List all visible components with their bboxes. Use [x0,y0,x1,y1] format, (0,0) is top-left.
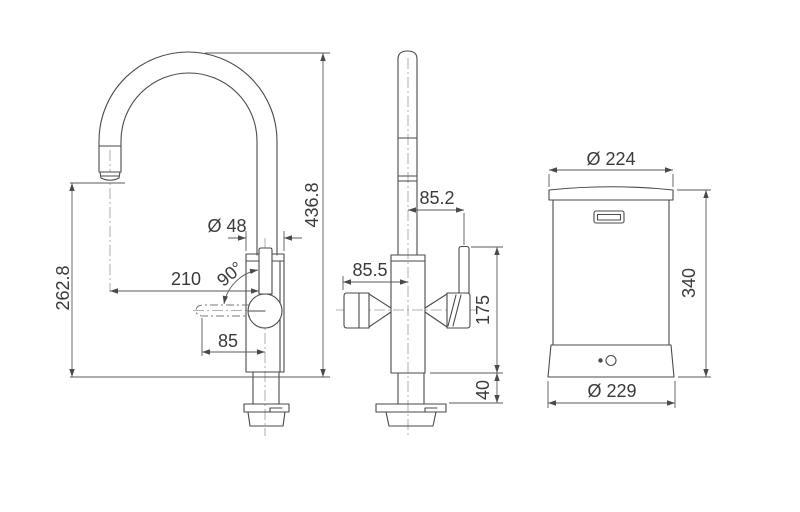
front-extension-lines [70,53,330,377]
tank-dim-top-diameter: Ø 224 [586,149,635,169]
arrowhead [320,369,325,377]
tank-view: Ø 224 340 Ø 229 [548,149,711,408]
arrowhead [703,190,708,198]
arrowhead [69,183,74,191]
side-centerlines [336,58,478,436]
arrowhead [238,235,246,240]
front-dim-total-height: 436.8 [302,182,322,227]
side-right-knob [447,293,470,328]
arrowhead [343,279,351,284]
side-dim-above-counter: 175 [473,295,493,325]
tank-dim-base-diameter: Ø 229 [587,381,636,401]
arrowhead [110,288,118,293]
arrowhead [667,400,675,405]
arrowhead [549,167,557,172]
arrowhead [548,400,556,405]
technical-drawing: 436.8 262.8 Ø 48 210 90° 85 [0,0,800,512]
front-base [244,372,289,426]
tank-body [553,200,669,345]
front-centerlines [110,150,272,436]
display-window-outer [594,211,624,223]
front-dim-body-diameter: Ø 48 [207,216,246,236]
front-dim-spout-reach: 210 [171,269,201,289]
side-dim-right-offset: 85.2 [419,188,454,208]
front-dim-handle-angle: 90° [213,258,247,291]
side-dim-shank-length: 40 [473,380,493,400]
arrowhead [456,207,464,212]
connector-icon [598,356,616,366]
arrowhead [69,369,74,377]
tank-dim-height: 340 [679,268,699,298]
arrowhead [494,395,499,403]
front-handle-up [259,248,272,294]
arrowhead [400,279,408,284]
front-angle-arrow-bottom [221,296,228,305]
tank-lid [549,187,673,200]
side-spout-tube [398,51,417,255]
arrowhead [408,207,416,212]
front-dim-handle-length: 85 [218,331,238,351]
side-dim-left-offset: 85.5 [352,260,387,280]
arrowhead [320,53,325,61]
front-spout-outline [99,52,277,255]
side-lever [459,247,469,294]
arrowhead [703,369,708,377]
side-right-cone [425,294,447,327]
connector-ring [606,356,616,366]
arrowhead [257,349,265,354]
front-dim-spout-height: 262.8 [53,265,73,310]
arrowhead [665,167,673,172]
side-base [376,373,446,426]
drawing-svg: 436.8 262.8 Ø 48 210 90° 85 [0,0,800,512]
side-view: 85.2 85.5 175 40 [336,51,503,436]
side-left-cone [369,294,391,327]
arrowhead [494,365,499,373]
display-window-inner [598,215,621,221]
arrowhead [494,373,499,381]
tank-base-band [548,345,674,377]
front-angle-arrow-top [250,267,259,274]
arrowhead [284,235,292,240]
arrowhead [202,349,210,354]
connector-dot [598,358,602,362]
display-window [594,211,624,223]
front-view: 436.8 262.8 Ø 48 210 90° 85 [53,52,330,436]
arrowhead [494,247,499,255]
side-left-knob [344,293,369,328]
arrowhead [251,288,259,293]
